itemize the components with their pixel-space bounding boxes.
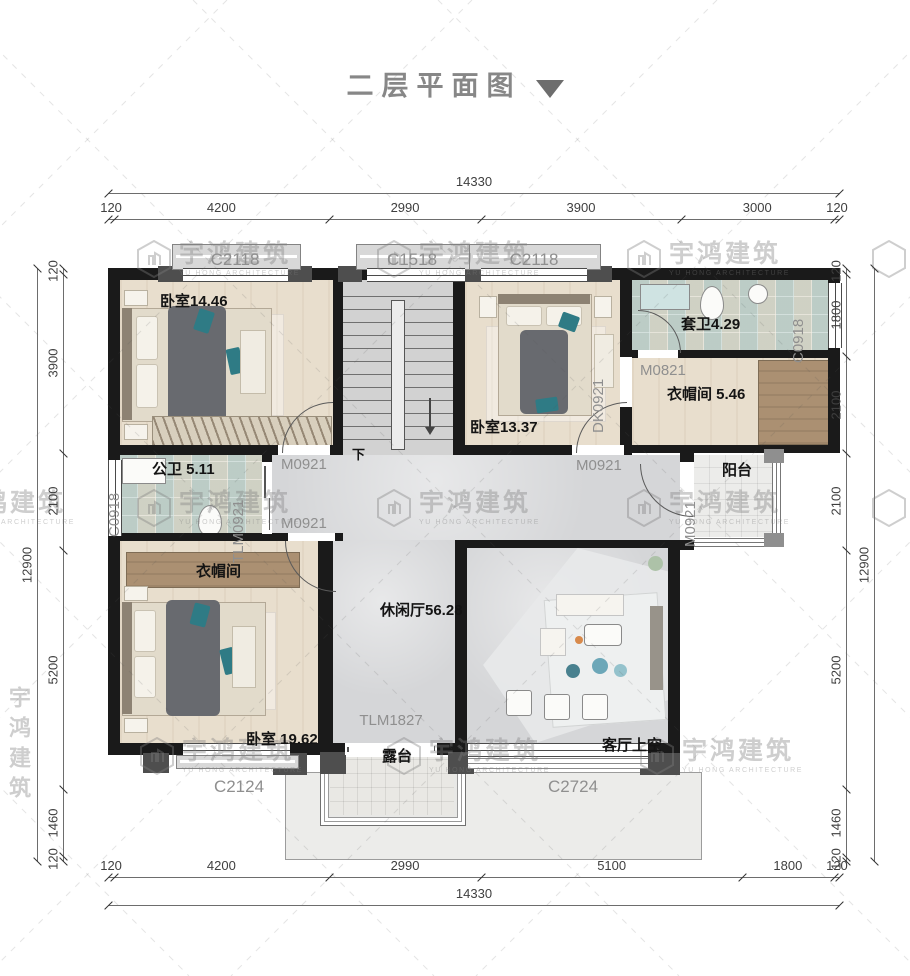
dimension-segment: 1800 bbox=[742, 856, 834, 878]
decor-dot bbox=[575, 636, 583, 644]
dimension-segment: 3000 bbox=[681, 198, 834, 220]
terrace-tiles bbox=[330, 757, 454, 815]
pouf bbox=[566, 664, 580, 678]
room-label-upper-closet: 衣帽间 5.46 bbox=[667, 387, 745, 402]
wall-stair-east bbox=[453, 280, 465, 455]
nightstand bbox=[124, 290, 148, 306]
watermark-text: 宇鸿建筑 bbox=[682, 739, 803, 764]
room-label-bedroom2: 卧室13.37 bbox=[470, 420, 538, 435]
dimension-segment: 1460 bbox=[825, 789, 847, 856]
nightstand bbox=[124, 586, 148, 601]
room-label-bedroom1: 卧室14.46 bbox=[160, 294, 228, 309]
room-label-ensuite: 套卫4.29 bbox=[681, 317, 740, 332]
bedroom1-headboard bbox=[122, 308, 132, 420]
room-label-public-bath: 公卫 5.11 bbox=[152, 462, 215, 477]
dimension-value: 1800 bbox=[829, 301, 844, 330]
dimension-value: 120 bbox=[829, 848, 844, 870]
plant bbox=[648, 556, 663, 571]
bed-pillow bbox=[134, 656, 156, 698]
dimension-value: 3900 bbox=[567, 200, 596, 215]
window-c1518 bbox=[367, 268, 465, 282]
opening-label-c0918-left: C0918 bbox=[107, 493, 122, 537]
upper-closet-wardrobe bbox=[758, 360, 830, 445]
dimension-value: 14330 bbox=[456, 174, 492, 189]
dimension-value: 4200 bbox=[207, 200, 236, 215]
balcony-corner-post bbox=[764, 449, 784, 463]
dimension-value: 1460 bbox=[46, 808, 61, 837]
room-label-living-void: 客厅上空 bbox=[602, 738, 662, 753]
dimension-segment: 2100 bbox=[825, 453, 847, 550]
armchair bbox=[540, 628, 566, 656]
room-label-terrace: 露台 bbox=[382, 749, 412, 764]
nightstand bbox=[479, 296, 497, 318]
page-title-row: 二层平面图 bbox=[0, 64, 910, 103]
bedroom2-headboard bbox=[498, 294, 590, 304]
window-c2118-left bbox=[183, 268, 288, 282]
opening-label-m0921-bed2: M0921 bbox=[576, 458, 622, 473]
dimension-segment: 12900 bbox=[853, 268, 875, 862]
floor-plan-page: 宇鸿建筑 YU HONG ARCHITECTURE 宇鸿建筑 YU HONG A… bbox=[0, 0, 910, 976]
nightstand bbox=[124, 424, 148, 440]
stool bbox=[506, 690, 532, 716]
dimension-segment: 5200 bbox=[825, 550, 847, 789]
dimension-value: 12900 bbox=[857, 547, 872, 583]
dimension-value: 1460 bbox=[829, 808, 844, 837]
dimension-segment: 120 bbox=[834, 198, 840, 220]
dimension-value: 1800 bbox=[773, 858, 802, 873]
dimension-value: 2100 bbox=[46, 487, 61, 516]
dimension-right-segments: 120 1800 2100 2100 5200 1460 120 bbox=[825, 268, 847, 862]
dimension-value: 2100 bbox=[829, 390, 844, 419]
room-label-hall: 休闲厅56.28 bbox=[380, 603, 463, 618]
dimension-value: 120 bbox=[826, 200, 848, 215]
opening-label-tlm1827: TLM1827 bbox=[359, 713, 422, 728]
room-label-bedroom3: 卧室 19.62 bbox=[246, 732, 318, 747]
dropdown-caret-icon[interactable] bbox=[536, 80, 564, 98]
dimension-segment: 2990 bbox=[329, 198, 482, 220]
dimension-segment: 120 bbox=[825, 857, 847, 863]
dimension-value: 2990 bbox=[391, 200, 420, 215]
dimension-segment: 4200 bbox=[114, 856, 329, 878]
nightstand bbox=[594, 296, 612, 318]
dimension-value: 4200 bbox=[207, 858, 236, 873]
window-box-c2124 bbox=[176, 755, 299, 769]
dimension-left-total: 12900 bbox=[16, 268, 38, 862]
dimension-value: 3000 bbox=[743, 200, 772, 215]
opening-label-m0921-bed1: M0921 bbox=[281, 457, 327, 472]
dimension-segment: 3900 bbox=[42, 274, 64, 454]
dimension-right-total: 12900 bbox=[853, 268, 875, 862]
dimension-segment: 2100 bbox=[42, 453, 64, 550]
dimension-top-segments: 120 4200 2990 3900 3000 120 bbox=[108, 198, 840, 220]
watermark-logo-icon bbox=[872, 489, 906, 527]
window-sill-c2724 bbox=[468, 757, 648, 769]
opening-label-dk0921: DK0921 bbox=[591, 379, 606, 433]
opening-label-tlm0921: TLM0921 bbox=[231, 500, 246, 563]
pouf bbox=[592, 658, 608, 674]
wall-stair-west bbox=[333, 280, 343, 455]
watermark-text: 宇鸿建筑 bbox=[669, 242, 790, 267]
dimension-segment: 14330 bbox=[108, 172, 840, 194]
dimension-segment: 2990 bbox=[329, 856, 482, 878]
page-title: 二层平面图 bbox=[347, 71, 522, 101]
bedroom3-headboard bbox=[122, 602, 132, 714]
dimension-segment: 4200 bbox=[114, 198, 329, 220]
dimension-value: 12900 bbox=[20, 547, 35, 583]
dimension-value: 2990 bbox=[391, 858, 420, 873]
dimension-value: 5200 bbox=[829, 655, 844, 684]
dimension-value: 5100 bbox=[597, 858, 626, 873]
dimension-segment: 12900 bbox=[16, 268, 38, 862]
window-c2118-mid bbox=[481, 268, 587, 282]
column bbox=[143, 753, 169, 773]
shower-head bbox=[748, 284, 768, 304]
opening-label-c2724: C2724 bbox=[548, 778, 598, 795]
dimension-segment: 2100 bbox=[825, 356, 847, 453]
bathroom-vanity bbox=[640, 284, 690, 310]
dimension-value: 3900 bbox=[46, 349, 61, 378]
dimension-segment: 120 bbox=[42, 856, 64, 862]
stair-direction-arrow bbox=[429, 398, 431, 432]
bedroom1-bench bbox=[240, 330, 266, 394]
dimension-bottom-total: 14330 bbox=[108, 884, 840, 906]
stairs-down-label: 下 bbox=[352, 448, 365, 461]
pouf bbox=[614, 664, 627, 677]
dimension-segment: 3900 bbox=[481, 198, 680, 220]
wall-closet-south bbox=[632, 445, 840, 453]
opening-label-m0921-closet: M0921 bbox=[281, 516, 327, 531]
dimension-segment: 5100 bbox=[481, 856, 742, 878]
opening-label-c0918-right: C0918 bbox=[791, 319, 806, 363]
wall-living-north bbox=[455, 540, 680, 548]
tv-cabinet bbox=[650, 606, 663, 690]
nightstand bbox=[124, 718, 148, 733]
bedroom3-bench bbox=[232, 626, 256, 688]
dimension-left-segments: 120 3900 2100 5200 1460 120 bbox=[42, 268, 64, 862]
balcony-corner-post bbox=[764, 533, 784, 547]
dimension-segment: 5200 bbox=[42, 550, 64, 789]
dimension-segment: 14330 bbox=[108, 884, 840, 906]
dimension-value: 120 bbox=[46, 848, 61, 870]
wall-living-east bbox=[668, 548, 680, 755]
opening-label-c2124: C2124 bbox=[214, 778, 264, 795]
room-label-lower-closet: 衣帽间 bbox=[196, 564, 241, 579]
opening-label-c2118-left: C2118 bbox=[211, 251, 260, 268]
dimension-value: 5200 bbox=[46, 655, 61, 684]
dimension-bottom-segments: 120 4200 2990 5100 1800 120 bbox=[108, 856, 840, 878]
dimension-segment: 1460 bbox=[42, 789, 64, 856]
bed-pillow bbox=[136, 364, 158, 408]
opening-label-m0921-balcony: M0921 bbox=[683, 501, 698, 547]
bed-pillow bbox=[506, 306, 542, 326]
door-opening-bedroom3 bbox=[288, 533, 335, 541]
sofa bbox=[556, 594, 624, 616]
bed-pillow bbox=[136, 316, 158, 360]
dimension-value: 2100 bbox=[829, 487, 844, 516]
column bbox=[320, 752, 346, 774]
opening-label-c1518: C1518 bbox=[387, 251, 437, 268]
toilet bbox=[700, 286, 724, 320]
passage-dk0921 bbox=[620, 357, 632, 407]
bed-pillow bbox=[134, 610, 156, 652]
stair-handrail bbox=[391, 300, 405, 450]
dimension-value: 14330 bbox=[456, 886, 492, 901]
opening-label-m0821: M0821 bbox=[640, 363, 686, 378]
coffee-table bbox=[584, 624, 622, 646]
opening-label-c2118-mid: C2118 bbox=[510, 251, 559, 268]
stool bbox=[582, 694, 608, 720]
sliding-door-tlm0921 bbox=[262, 462, 272, 534]
wall-living-west bbox=[455, 548, 467, 743]
dimension-top-total: 14330 bbox=[108, 172, 840, 194]
stool bbox=[544, 694, 570, 720]
dimension-segment: 1800 bbox=[825, 274, 847, 357]
watermark bbox=[872, 489, 906, 527]
room-label-balcony: 阳台 bbox=[722, 463, 752, 478]
